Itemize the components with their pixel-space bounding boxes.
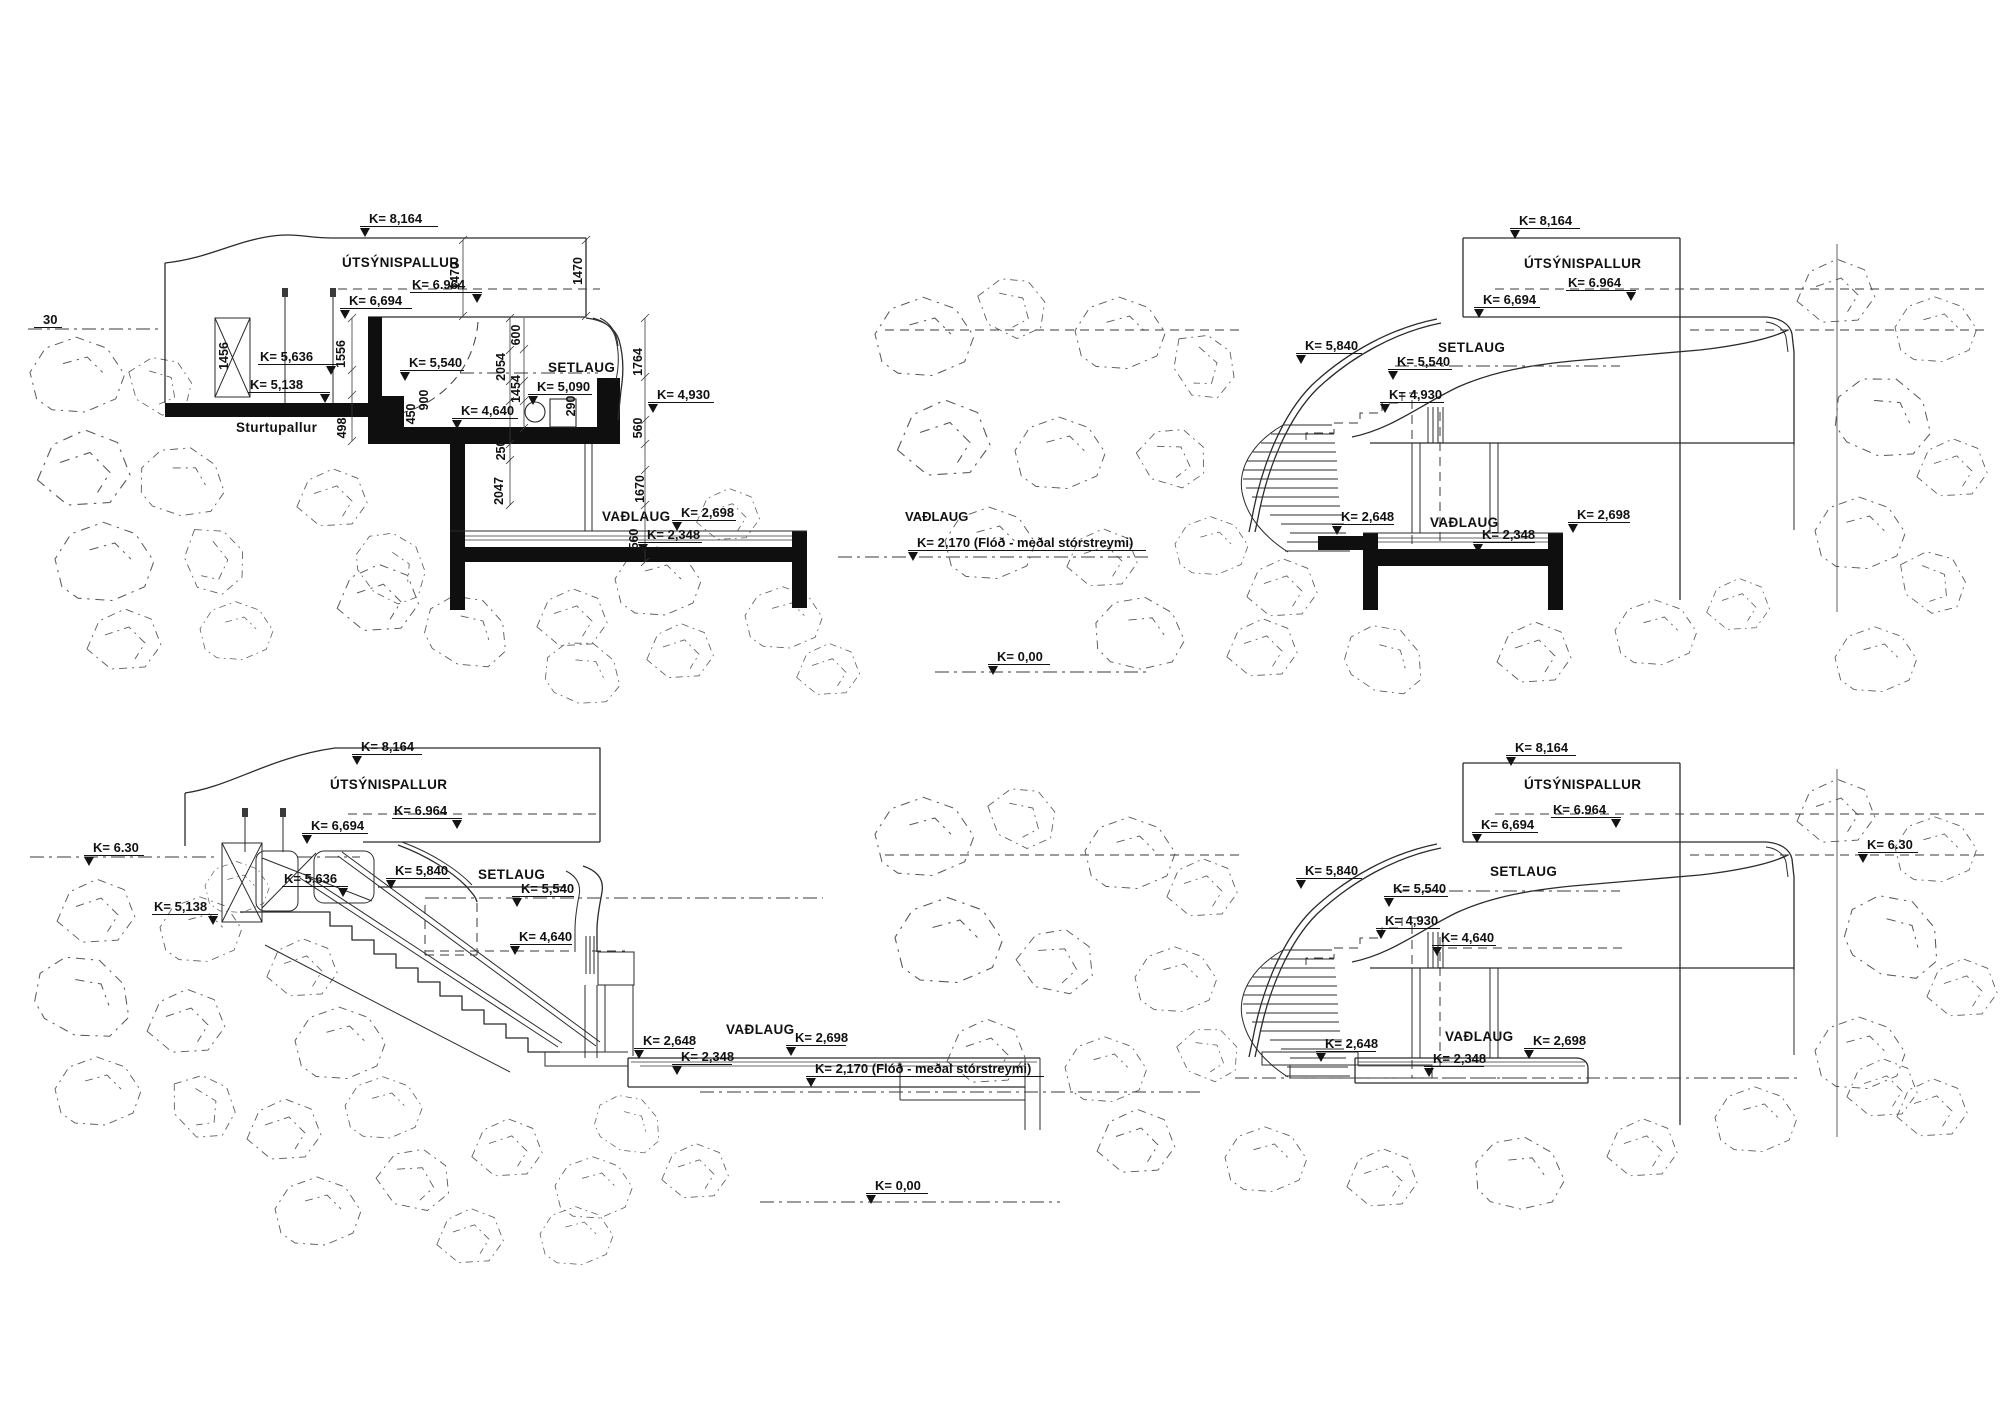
level-label: K= 2,348 — [1473, 528, 1535, 543]
area-label: SETLAUG — [478, 867, 545, 882]
dimension-label: 250 — [494, 440, 508, 461]
level-text: K= 2,698 — [786, 1031, 848, 1045]
level-text: K= 5,540 — [512, 882, 574, 896]
level-line — [1524, 1048, 1584, 1049]
level-marker-icon — [908, 552, 918, 561]
area-label: ÚTSÝNISPALLUR — [330, 777, 447, 792]
level-marker-icon — [1376, 930, 1386, 939]
area-label: SETLAUG — [548, 360, 615, 375]
level-marker-icon — [1380, 404, 1390, 413]
level-label: K= 5,138 — [248, 378, 330, 393]
level-marker-icon — [1316, 1053, 1326, 1062]
level-line — [1472, 832, 1538, 833]
level-text: K= 2,348 — [638, 528, 702, 542]
level-line — [1388, 369, 1452, 370]
level-label: K= 5,138 — [152, 900, 223, 915]
level-line — [1380, 402, 1444, 403]
dimension-label: 560 — [627, 529, 641, 550]
level-line — [866, 1193, 928, 1194]
level-label: K= 5,840 — [386, 864, 450, 879]
level-marker-icon — [806, 1078, 816, 1087]
level-line — [908, 550, 1146, 551]
level-text: K= 4,930 — [1376, 914, 1440, 928]
level-marker-icon — [1388, 371, 1398, 380]
level-label: K= 5,540 — [1384, 882, 1448, 897]
level-line — [386, 878, 450, 879]
level-line — [786, 1045, 846, 1046]
level-text: K= 2,348 — [1473, 528, 1535, 542]
area-label: VAÐLAUG — [1445, 1029, 1514, 1044]
level-line — [1551, 817, 1621, 818]
level-line — [282, 886, 348, 887]
level-text: K= 4,640 — [510, 930, 572, 944]
level-text: K= 6.964 — [1551, 803, 1622, 817]
level-label: K= 6.964 — [410, 278, 482, 293]
level-text: K= 6.964 — [1566, 276, 1637, 290]
level-text: K= 5,540 — [1384, 882, 1448, 896]
level-marker-icon — [1474, 309, 1484, 318]
area-label: VAÐLAUG — [602, 509, 671, 524]
level-marker-icon — [786, 1047, 796, 1056]
level-text: K= 2,348 — [672, 1050, 734, 1064]
level-text: VAÐLAUG — [896, 510, 968, 524]
dimension-label: 2047 — [492, 477, 506, 505]
level-line — [988, 664, 1050, 665]
drawing-canvas: K= 8,164K= 6.964K= 6,694K= 5,636K= 5,138… — [0, 0, 2000, 1413]
level-marker-icon — [302, 835, 312, 844]
area-label: SETLAUG — [1438, 340, 1505, 355]
level-marker-icon — [512, 898, 522, 907]
level-label: VAÐLAUG — [896, 510, 968, 524]
level-text: K= 5,636 — [258, 350, 336, 364]
level-line — [410, 292, 482, 293]
dimension-label: 1470 — [448, 262, 462, 290]
level-marker-icon — [1473, 544, 1483, 553]
level-label: 30 — [34, 313, 62, 328]
level-line — [638, 542, 702, 543]
level-label: K= 8,164 — [1510, 214, 1580, 229]
level-line — [510, 944, 572, 945]
level-text: K= 5,840 — [386, 864, 450, 878]
level-marker-icon — [208, 916, 218, 925]
level-label: K= 2,698 — [1524, 1034, 1586, 1049]
area-label: ÚTSÝNISPALLUR — [342, 255, 459, 270]
level-label: K= 6,694 — [302, 819, 368, 834]
level-line — [352, 754, 422, 755]
level-text: K= 2,648 — [1316, 1037, 1378, 1051]
level-line — [672, 1064, 732, 1065]
level-label: K= 2,698 — [786, 1031, 848, 1046]
level-text: K= 2,170 (Flóð - meðal stórstreymi) — [806, 1062, 1044, 1076]
dimension-label: 1556 — [334, 340, 348, 368]
labels-layer: K= 8,164K= 6.964K= 6,694K= 5,636K= 5,138… — [0, 0, 2000, 1413]
level-label: K= 6,694 — [1472, 818, 1538, 833]
level-label: K= 5,840 — [1296, 864, 1362, 879]
level-line — [302, 833, 368, 834]
level-marker-icon — [360, 228, 370, 237]
level-line — [340, 308, 412, 309]
level-marker-icon — [84, 857, 94, 866]
level-text: K= 2,648 — [1332, 510, 1394, 524]
level-text: K= 4,930 — [648, 388, 714, 402]
level-line — [648, 402, 714, 403]
level-label: K= 6.30 — [1858, 838, 1918, 853]
level-text: K= 8,164 — [352, 740, 422, 754]
level-marker-icon — [352, 756, 362, 765]
level-label: K= 2,348 — [672, 1050, 734, 1065]
level-label: K= 5,540 — [1388, 355, 1452, 370]
level-label: K= 8,164 — [1506, 741, 1576, 756]
level-label: K= 4,930 — [1380, 388, 1444, 403]
level-text: K= 6.30 — [1858, 838, 1918, 852]
level-marker-icon — [340, 310, 350, 319]
level-label: K= 6.964 — [392, 804, 463, 819]
level-marker-icon — [1510, 230, 1520, 239]
level-marker-icon — [1432, 947, 1442, 956]
level-marker-icon — [452, 820, 462, 829]
level-marker-icon — [1568, 524, 1578, 533]
level-line — [1568, 522, 1630, 523]
level-label: K= 2,648 — [1316, 1037, 1378, 1052]
level-line — [248, 392, 330, 393]
level-text: K= 2,698 — [672, 506, 736, 520]
level-text: K= 0,00 — [866, 1179, 928, 1193]
level-text: K= 6.30 — [84, 841, 144, 855]
level-text: K= 5,840 — [1296, 864, 1362, 878]
level-line — [1566, 290, 1636, 291]
level-line — [392, 818, 462, 819]
level-line — [1296, 878, 1362, 879]
level-line — [1332, 524, 1394, 525]
level-line — [34, 327, 62, 328]
level-text: K= 2,698 — [1568, 508, 1630, 522]
level-label: K= 6,694 — [1474, 293, 1540, 308]
level-label: K= 5,636 — [258, 350, 336, 365]
level-marker-icon — [1472, 834, 1482, 843]
level-marker-icon — [472, 294, 482, 303]
level-text: K= 6.964 — [392, 804, 463, 818]
level-line — [528, 394, 592, 395]
level-label: K= 8,164 — [360, 212, 438, 227]
level-text: K= 5,138 — [152, 900, 223, 914]
level-label: K= 0,00 — [988, 650, 1050, 665]
level-text: K= 5,636 — [282, 872, 353, 886]
area-label: ÚTSÝNISPALLUR — [1524, 256, 1641, 271]
level-line — [1506, 755, 1576, 756]
level-label: K= 5,090 — [528, 380, 592, 395]
level-line — [672, 520, 736, 521]
level-line — [258, 364, 336, 365]
level-text: K= 4,930 — [1380, 388, 1444, 402]
level-marker-icon — [1506, 757, 1516, 766]
level-line — [1424, 1066, 1484, 1067]
level-label: K= 6.964 — [1551, 803, 1622, 818]
level-line — [152, 914, 218, 915]
level-label: K= 6.964 — [1566, 276, 1637, 291]
level-line — [1316, 1051, 1376, 1052]
level-marker-icon — [452, 420, 462, 429]
level-text: K= 5,840 — [1296, 339, 1362, 353]
level-marker-icon — [634, 1050, 644, 1059]
level-text: K= 5,138 — [248, 378, 330, 392]
dimension-label: 560 — [631, 418, 645, 439]
area-label: VAÐLAUG — [1430, 515, 1499, 530]
dimension-label: 498 — [335, 418, 349, 439]
level-text: K= 2,698 — [1524, 1034, 1586, 1048]
level-text: K= 6,694 — [1472, 818, 1538, 832]
level-marker-icon — [1296, 880, 1306, 889]
level-line — [512, 896, 574, 897]
level-line — [1474, 307, 1540, 308]
level-text: K= 2,648 — [634, 1034, 696, 1048]
level-text: K= 4,640 — [452, 404, 518, 418]
area-label: ÚTSÝNISPALLUR — [1524, 777, 1641, 792]
level-marker-icon — [1332, 526, 1342, 535]
dimension-label: 1670 — [633, 475, 647, 503]
level-marker-icon — [528, 396, 538, 405]
level-text: K= 6,694 — [340, 294, 412, 308]
area-label: Sturtupallur — [236, 420, 317, 435]
dimension-label: 1454 — [509, 375, 523, 403]
level-label: K= 5,540 — [512, 882, 574, 897]
level-line — [1296, 353, 1362, 354]
level-marker-icon — [400, 372, 410, 381]
level-label: K= 5,840 — [1296, 339, 1362, 354]
dimension-label: 600 — [509, 325, 523, 346]
level-label: K= 2,170 (Flóð - meðal stórstreymi) — [806, 1062, 1044, 1077]
level-line — [400, 370, 464, 371]
dimension-label: 1470 — [571, 257, 585, 285]
level-text: 30 — [34, 313, 62, 327]
level-label: K= 2,698 — [1568, 508, 1630, 523]
level-text: K= 6,694 — [1474, 293, 1540, 307]
level-marker-icon — [1384, 898, 1394, 907]
level-marker-icon — [866, 1195, 876, 1204]
level-label: K= 4,640 — [510, 930, 572, 945]
level-text: K= 2,348 — [1424, 1052, 1486, 1066]
level-text: K= 8,164 — [360, 212, 438, 226]
level-label: K= 0,00 — [866, 1179, 928, 1194]
level-marker-icon — [988, 666, 998, 675]
level-marker-icon — [1626, 292, 1636, 301]
level-marker-icon — [338, 888, 348, 897]
level-marker-icon — [648, 404, 658, 413]
level-text: K= 4,640 — [1432, 931, 1496, 945]
dimension-label: 290 — [564, 396, 578, 417]
level-label: K= 2,348 — [1424, 1052, 1486, 1067]
level-label: K= 2,170 (Flóð - meðal stórstreymi) — [908, 536, 1146, 551]
level-label: K= 6.30 — [84, 841, 144, 856]
level-label: K= 2,348 — [638, 528, 702, 543]
level-marker-icon — [386, 880, 396, 889]
level-marker-icon — [672, 1066, 682, 1075]
level-line — [806, 1076, 1044, 1077]
level-line — [1432, 945, 1496, 946]
level-text: K= 8,164 — [1510, 214, 1580, 228]
level-label: K= 5,540 — [400, 356, 464, 371]
level-label: K= 2,648 — [1332, 510, 1394, 525]
level-marker-icon — [1858, 854, 1868, 863]
dimension-label: 1456 — [217, 342, 231, 370]
level-text: K= 6,694 — [302, 819, 368, 833]
level-label: K= 6,694 — [340, 294, 412, 309]
level-marker-icon — [510, 946, 520, 955]
level-text: K= 6.964 — [410, 278, 482, 292]
level-text: K= 8,164 — [1506, 741, 1576, 755]
area-label: SETLAUG — [1490, 864, 1557, 879]
area-label: VAÐLAUG — [726, 1022, 795, 1037]
level-label: K= 4,640 — [452, 404, 518, 419]
level-text: K= 0,00 — [988, 650, 1050, 664]
level-label: K= 4,930 — [648, 388, 714, 403]
level-text: K= 2,170 (Flóð - meðal stórstreymi) — [908, 536, 1146, 550]
level-text: K= 5,540 — [1388, 355, 1452, 369]
dimension-label: 1764 — [631, 348, 645, 376]
level-marker-icon — [1611, 819, 1621, 828]
level-marker-icon — [320, 394, 330, 403]
level-line — [1473, 542, 1535, 543]
dimension-label: 2054 — [494, 353, 508, 381]
level-text: K= 5,540 — [400, 356, 464, 370]
level-label: K= 5,636 — [282, 872, 353, 887]
level-marker-icon — [1524, 1050, 1534, 1059]
dimension-label: 450 — [404, 404, 418, 425]
level-line — [1510, 228, 1580, 229]
level-line — [360, 226, 438, 227]
level-line — [84, 855, 144, 856]
level-line — [1376, 928, 1440, 929]
level-marker-icon — [1424, 1068, 1434, 1077]
dimension-label: 900 — [417, 390, 431, 411]
level-label: K= 4,640 — [1432, 931, 1496, 946]
level-label: K= 4,930 — [1376, 914, 1440, 929]
level-label: K= 2,698 — [672, 506, 736, 521]
level-line — [1858, 852, 1918, 853]
level-label: K= 2,648 — [634, 1034, 696, 1049]
level-line — [1384, 896, 1448, 897]
level-line — [452, 418, 518, 419]
level-marker-icon — [1296, 355, 1306, 364]
level-label: K= 8,164 — [352, 740, 422, 755]
level-text: K= 5,090 — [528, 380, 592, 394]
